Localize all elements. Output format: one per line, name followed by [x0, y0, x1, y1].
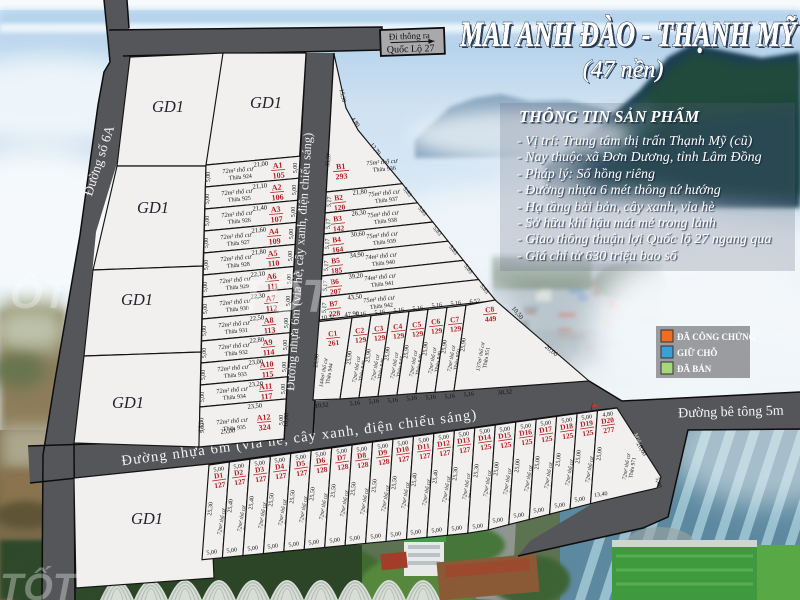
- svg-text:129: 129: [450, 324, 462, 334]
- svg-text:GD1: GD1: [121, 290, 153, 309]
- svg-text:A12: A12: [256, 412, 271, 422]
- svg-text:125: 125: [500, 440, 513, 451]
- svg-text:Đường bê tông 5m: Đường bê tông 5m: [678, 404, 784, 422]
- svg-text:5,00: 5,00: [293, 163, 299, 174]
- svg-text:B7: B7: [329, 299, 339, 309]
- svg-text:5,16: 5,16: [444, 393, 455, 400]
- svg-text:324: 324: [258, 422, 271, 432]
- svg-text:5,16: 5,16: [450, 300, 461, 307]
- svg-text:5,17: 5,17: [325, 238, 332, 249]
- svg-text:5,16: 5,16: [406, 395, 417, 402]
- svg-text:5,00: 5,00: [292, 185, 298, 196]
- svg-text:5,00: 5,00: [200, 392, 206, 403]
- svg-text:TỐT: TỐT: [238, 270, 334, 322]
- svg-text:129: 129: [412, 329, 424, 339]
- svg-text:128: 128: [337, 462, 350, 473]
- svg-text:THÔNG TIN SẢN PHẨM: THÔNG TIN SẢN PHẨM: [519, 107, 700, 126]
- svg-text:109: 109: [268, 236, 281, 246]
- svg-text:B6: B6: [330, 277, 340, 287]
- svg-text:125: 125: [541, 434, 554, 445]
- svg-text:B2: B2: [334, 193, 344, 203]
- svg-text:125: 125: [582, 428, 595, 439]
- svg-text:5,16: 5,16: [387, 397, 398, 404]
- svg-text:21,60: 21,60: [251, 226, 266, 234]
- svg-text:21,00: 21,00: [253, 160, 268, 168]
- svg-text:- Đường nhựa 6 mét thông tứ hư: - Đường nhựa 6 mét thông tứ hướng: [517, 183, 721, 198]
- svg-text:B5: B5: [331, 256, 341, 266]
- svg-text:127: 127: [398, 454, 411, 465]
- svg-text:GIỮ CHỖ: GIỮ CHỖ: [677, 348, 717, 358]
- svg-text:129: 129: [393, 331, 405, 341]
- svg-text:5,00: 5,00: [283, 340, 289, 351]
- svg-text:127: 127: [275, 471, 288, 482]
- svg-text:10,00: 10,00: [283, 412, 291, 427]
- svg-text:ỐT: ỐT: [10, 269, 72, 317]
- svg-text:GD1: GD1: [250, 93, 282, 112]
- svg-text:- Nay thuộc xã Đơn Dương, tỉnh: - Nay thuộc xã Đơn Dương, tỉnh Lâm Đồng: [517, 150, 762, 165]
- svg-text:5,16: 5,16: [374, 309, 385, 316]
- svg-text:5,00: 5,00: [282, 362, 288, 373]
- svg-text:B3: B3: [333, 214, 343, 224]
- svg-text:5,00: 5,00: [204, 260, 210, 271]
- svg-text:- Giá chỉ từ 630 triệu bao sổ: - Giá chỉ từ 630 triệu bao sổ: [517, 249, 678, 264]
- svg-text:106: 106: [271, 192, 284, 202]
- svg-text:C6: C6: [431, 317, 441, 327]
- svg-text:- Sở hữu khí hậu mát mẻ trong: - Sở hữu khí hậu mát mẻ trong lành: [517, 216, 716, 231]
- svg-text:110: 110: [267, 258, 279, 268]
- svg-text:- Hạ tầng bài bản, cây xanh, v: - Hạ tầng bài bản, cây xanh, vỉa hè: [517, 200, 715, 215]
- svg-text:GD1: GD1: [112, 393, 144, 412]
- svg-text:C1: C1: [328, 329, 338, 339]
- svg-text:23,50: 23,50: [247, 402, 262, 410]
- svg-text:21,40: 21,40: [252, 204, 267, 212]
- svg-text:Đi thông ra: Đi thông ra: [389, 30, 430, 41]
- svg-text:A11: A11: [259, 381, 273, 391]
- svg-text:GD1: GD1: [152, 97, 184, 116]
- svg-text:C3: C3: [374, 324, 384, 334]
- svg-text:21,80: 21,80: [251, 248, 266, 256]
- svg-text:127: 127: [214, 480, 227, 491]
- svg-text:5,00: 5,00: [205, 216, 211, 227]
- svg-text:127: 127: [234, 477, 247, 488]
- svg-text:127: 127: [439, 448, 452, 459]
- svg-text:TỐT: TỐT: [0, 564, 79, 600]
- svg-text:5,00: 5,00: [288, 251, 294, 262]
- svg-text:GD1: GD1: [131, 509, 163, 528]
- svg-text:5,17: 5,17: [327, 196, 334, 207]
- svg-text:5,16: 5,16: [368, 398, 379, 405]
- svg-text:C8: C8: [485, 305, 495, 315]
- svg-text:B4: B4: [332, 235, 342, 245]
- svg-text:127: 127: [255, 474, 268, 485]
- svg-text:5,17: 5,17: [326, 218, 333, 229]
- svg-text:128: 128: [357, 460, 370, 471]
- svg-text:- Giao thông thuận lợi Quốc lộ: - Giao thông thuận lợi Quốc lộ 27 ngang …: [517, 232, 771, 247]
- svg-text:127: 127: [459, 445, 472, 456]
- svg-text:128: 128: [378, 457, 391, 468]
- svg-text:C7: C7: [450, 315, 460, 325]
- svg-text:A3: A3: [270, 205, 281, 215]
- svg-text:5,00: 5,00: [206, 172, 212, 183]
- svg-text:105: 105: [272, 170, 285, 180]
- svg-text:C2: C2: [355, 326, 365, 336]
- svg-text:5,00: 5,00: [201, 370, 207, 381]
- svg-text:B1: B1: [336, 162, 346, 172]
- svg-text:A9: A9: [262, 338, 273, 348]
- svg-text:5,16: 5,16: [393, 307, 404, 314]
- svg-text:30,32: 30,32: [497, 388, 512, 396]
- svg-text:5,00: 5,00: [289, 229, 295, 240]
- svg-text:5,00: 5,00: [203, 282, 209, 293]
- svg-text:6,52: 6,52: [469, 298, 480, 305]
- svg-text:5,00: 5,00: [203, 304, 209, 315]
- svg-text:- Pháp lý: Sổ hồng riêng: - Pháp lý: Sổ hồng riêng: [517, 167, 655, 182]
- svg-text:17,30: 17,30: [198, 417, 206, 432]
- svg-text:(47 nền): (47 nền): [583, 57, 664, 83]
- svg-text:21,10: 21,10: [252, 182, 267, 190]
- svg-text:A2: A2: [271, 183, 282, 193]
- svg-text:129: 129: [374, 333, 386, 343]
- svg-text:5,16: 5,16: [349, 400, 360, 407]
- svg-text:449: 449: [485, 314, 497, 324]
- svg-text:C5: C5: [412, 320, 422, 330]
- svg-text:A10: A10: [259, 359, 274, 369]
- svg-text:C4: C4: [393, 322, 403, 332]
- svg-text:5,16: 5,16: [431, 302, 442, 309]
- svg-text:5,00: 5,00: [204, 238, 210, 249]
- svg-text:MAI ANH ĐÀO - THẠNH MỸ: MAI ANH ĐÀO - THẠNH MỸ: [459, 14, 798, 54]
- svg-text:5,00: 5,00: [202, 326, 208, 337]
- svg-text:129: 129: [355, 335, 367, 345]
- svg-text:5,16: 5,16: [463, 391, 474, 398]
- svg-text:129: 129: [431, 326, 443, 336]
- svg-text:293: 293: [335, 171, 348, 181]
- svg-text:127: 127: [296, 468, 309, 479]
- svg-text:261: 261: [328, 338, 340, 348]
- svg-text:277: 277: [603, 425, 616, 436]
- svg-text:ĐÃ BÁN: ĐÃ BÁN: [677, 364, 712, 374]
- svg-text:- Vị trí: Trung tâm thị trấn T: - Vị trí: Trung tâm thị trấn Thạnh Mỹ (c…: [517, 134, 753, 149]
- svg-text:5,00: 5,00: [202, 348, 208, 359]
- svg-text:125: 125: [480, 442, 493, 453]
- svg-text:ĐÃ CÔNG CHỨNG: ĐÃ CÔNG CHỨNG: [677, 332, 756, 342]
- svg-text:GD1: GD1: [137, 198, 169, 217]
- svg-text:5,00: 5,00: [205, 194, 211, 205]
- svg-text:127: 127: [419, 451, 432, 462]
- svg-text:5,00: 5,00: [281, 384, 287, 395]
- svg-text:128: 128: [316, 465, 329, 476]
- svg-text:5,16: 5,16: [412, 305, 423, 312]
- svg-text:125: 125: [521, 437, 534, 448]
- svg-text:107: 107: [270, 214, 283, 224]
- svg-text:A4: A4: [268, 227, 279, 237]
- svg-text:Quốc Lộ 27: Quốc Lộ 27: [387, 43, 435, 56]
- svg-text:5,00: 5,00: [291, 207, 297, 218]
- svg-text:125: 125: [562, 431, 575, 442]
- svg-text:A1: A1: [272, 161, 283, 171]
- svg-text:5,16: 5,16: [425, 394, 436, 401]
- svg-text:5,16: 5,16: [355, 311, 366, 318]
- svg-text:A5: A5: [267, 249, 278, 259]
